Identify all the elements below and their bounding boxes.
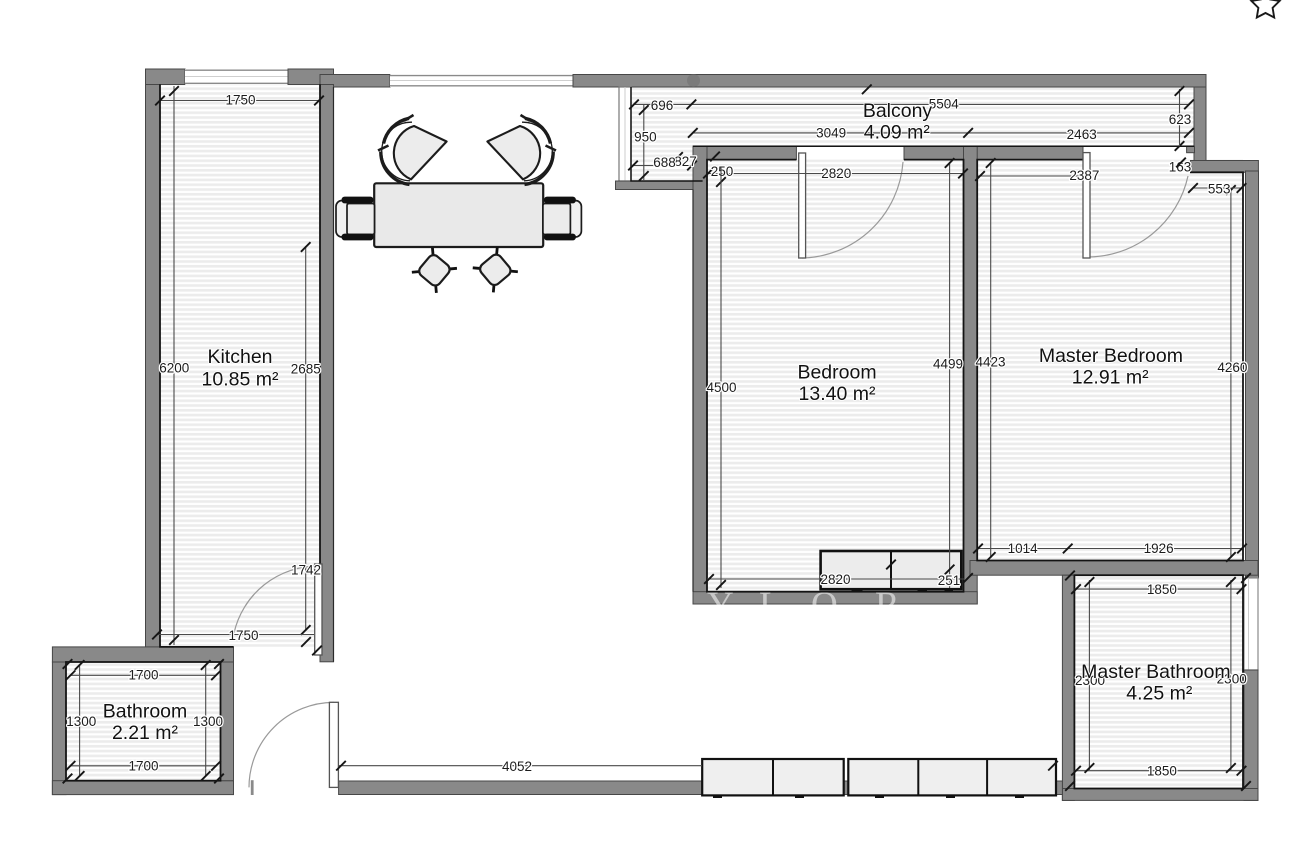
svg-text:2.21 m²: 2.21 m² — [112, 722, 179, 744]
svg-text:163: 163 — [1169, 160, 1192, 175]
svg-text:12.91 m²: 12.91 m² — [1072, 367, 1149, 389]
svg-text:1700: 1700 — [128, 668, 158, 683]
svg-text:4499: 4499 — [933, 357, 963, 372]
svg-text:1750: 1750 — [228, 628, 258, 643]
svg-text:Bedroom: Bedroom — [797, 362, 876, 384]
svg-text:6200: 6200 — [159, 361, 189, 376]
svg-text:2463: 2463 — [1067, 127, 1097, 142]
svg-text:1700: 1700 — [128, 758, 158, 773]
svg-text:4423: 4423 — [975, 355, 1005, 370]
svg-text:1926: 1926 — [1144, 541, 1174, 556]
svg-text:4260: 4260 — [1217, 360, 1247, 375]
svg-text:Master Bedroom: Master Bedroom — [1039, 345, 1183, 367]
svg-text:1300: 1300 — [193, 714, 223, 729]
svg-text:1850: 1850 — [1147, 764, 1177, 779]
svg-text:1014: 1014 — [1008, 541, 1039, 556]
svg-text:Balcony: Balcony — [863, 100, 933, 122]
svg-text:1750: 1750 — [225, 93, 255, 108]
svg-text:Kitchen: Kitchen — [207, 346, 272, 368]
svg-text:1742: 1742 — [291, 563, 321, 578]
svg-text:696: 696 — [651, 98, 674, 113]
svg-text:2820: 2820 — [821, 166, 851, 181]
svg-text:4500: 4500 — [706, 380, 736, 395]
svg-text:827: 827 — [674, 154, 697, 169]
svg-text:4.09 m²: 4.09 m² — [864, 122, 931, 144]
svg-text:Bathroom: Bathroom — [103, 701, 188, 723]
svg-text:4052: 4052 — [502, 759, 532, 774]
svg-text:4.25 m²: 4.25 m² — [1126, 683, 1193, 705]
svg-text:688: 688 — [653, 155, 676, 170]
svg-text:250: 250 — [711, 164, 734, 179]
svg-text:2387: 2387 — [1069, 168, 1099, 183]
svg-text:251: 251 — [938, 573, 961, 588]
svg-text:1300: 1300 — [66, 714, 96, 729]
svg-text:5504: 5504 — [929, 96, 960, 111]
svg-text:Master Bathroom: Master Bathroom — [1081, 661, 1231, 683]
svg-text:13.40 m²: 13.40 m² — [799, 383, 876, 405]
svg-text:3049: 3049 — [816, 125, 846, 140]
svg-text:2685: 2685 — [291, 362, 321, 377]
svg-text:553: 553 — [1208, 181, 1231, 196]
svg-text:10.85 m²: 10.85 m² — [202, 369, 279, 391]
svg-text:1850: 1850 — [1147, 582, 1177, 597]
svg-text:2820: 2820 — [820, 572, 850, 587]
svg-text:623: 623 — [1169, 112, 1192, 127]
svg-text:950: 950 — [634, 130, 657, 145]
